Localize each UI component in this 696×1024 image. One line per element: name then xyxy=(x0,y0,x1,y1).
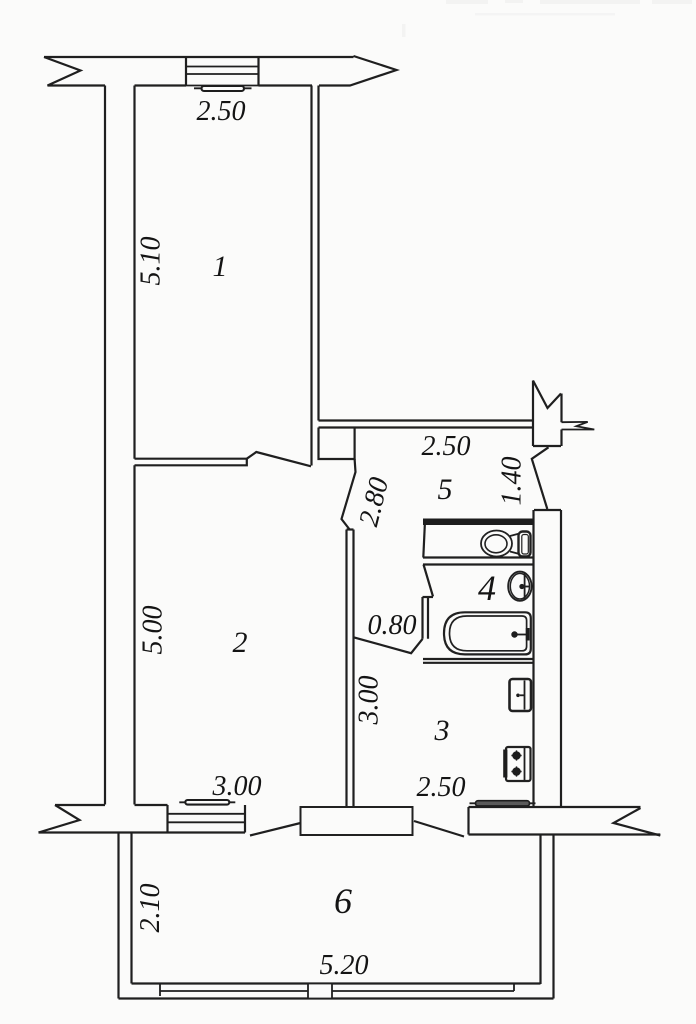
svg-text:5: 5 xyxy=(438,473,453,506)
svg-text:2.50: 2.50 xyxy=(422,431,471,462)
svg-text:0.80: 0.80 xyxy=(368,610,417,641)
svg-text:2.80: 2.80 xyxy=(353,474,395,529)
svg-text:3.00: 3.00 xyxy=(354,676,385,726)
svg-text:3.00: 3.00 xyxy=(212,771,262,802)
svg-text:5.20: 5.20 xyxy=(320,950,369,981)
svg-text:5.00: 5.00 xyxy=(138,606,169,655)
svg-text:2.10: 2.10 xyxy=(135,884,166,933)
svg-text:1.40: 1.40 xyxy=(497,457,528,506)
svg-text:1: 1 xyxy=(213,250,228,283)
svg-text:4: 4 xyxy=(478,568,496,608)
svg-text:6: 6 xyxy=(334,881,352,921)
svg-text:2.50: 2.50 xyxy=(197,96,246,127)
svg-text:2: 2 xyxy=(233,626,248,659)
svg-text:5.10: 5.10 xyxy=(136,237,167,286)
svg-text:3: 3 xyxy=(434,714,450,747)
svg-text:2.50: 2.50 xyxy=(417,772,466,803)
